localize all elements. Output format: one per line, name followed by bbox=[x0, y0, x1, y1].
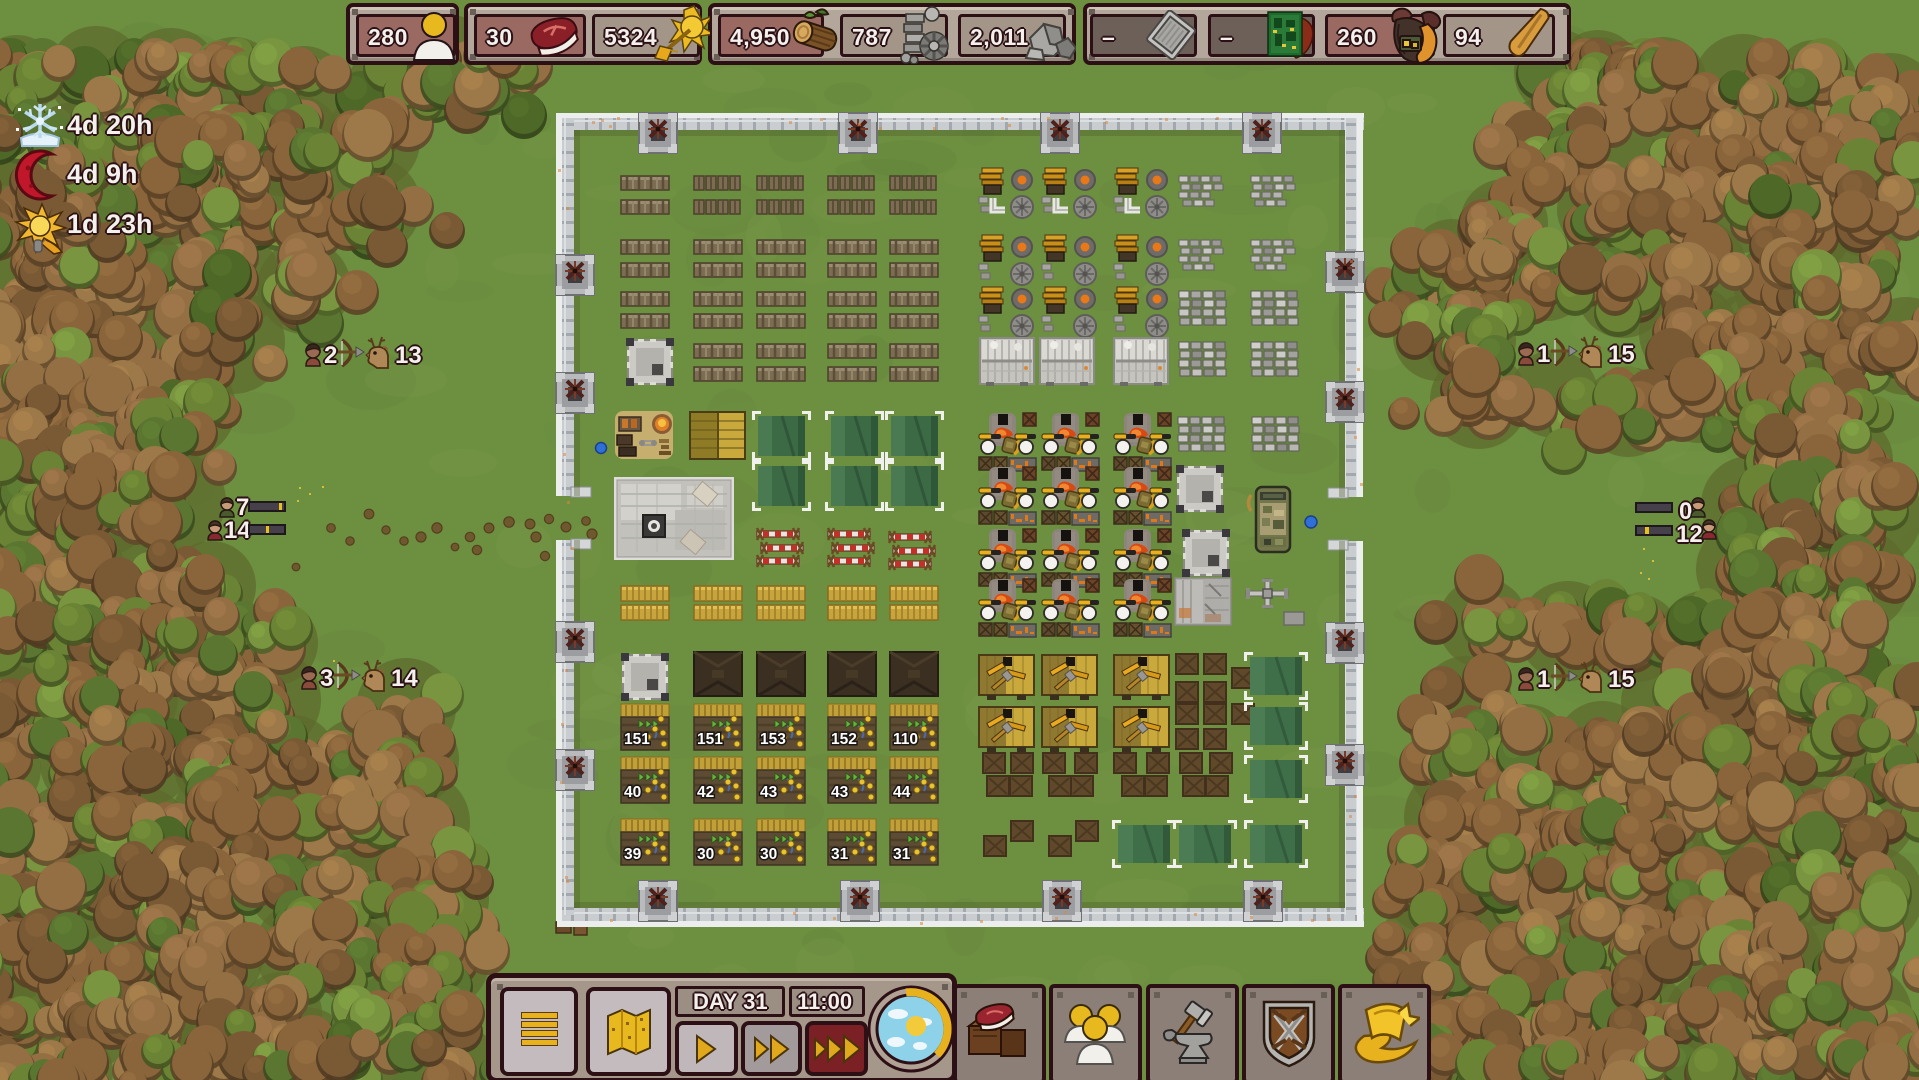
svg-text:110: 110 bbox=[893, 731, 918, 748]
svg-text:31: 31 bbox=[831, 846, 849, 863]
svg-text:39: 39 bbox=[624, 846, 642, 863]
svg-text:151: 151 bbox=[624, 731, 650, 748]
svg-text:40: 40 bbox=[624, 784, 641, 801]
svg-text:42: 42 bbox=[697, 784, 714, 801]
svg-text:151: 151 bbox=[697, 731, 723, 748]
svg-text:30: 30 bbox=[760, 846, 777, 863]
svg-text:30: 30 bbox=[697, 846, 714, 863]
svg-text:152: 152 bbox=[831, 731, 857, 748]
svg-text:43: 43 bbox=[760, 784, 778, 801]
svg-text:43: 43 bbox=[831, 784, 849, 801]
svg-text:31: 31 bbox=[893, 846, 911, 863]
svg-text:153: 153 bbox=[760, 731, 786, 748]
svg-text:44: 44 bbox=[893, 784, 911, 801]
